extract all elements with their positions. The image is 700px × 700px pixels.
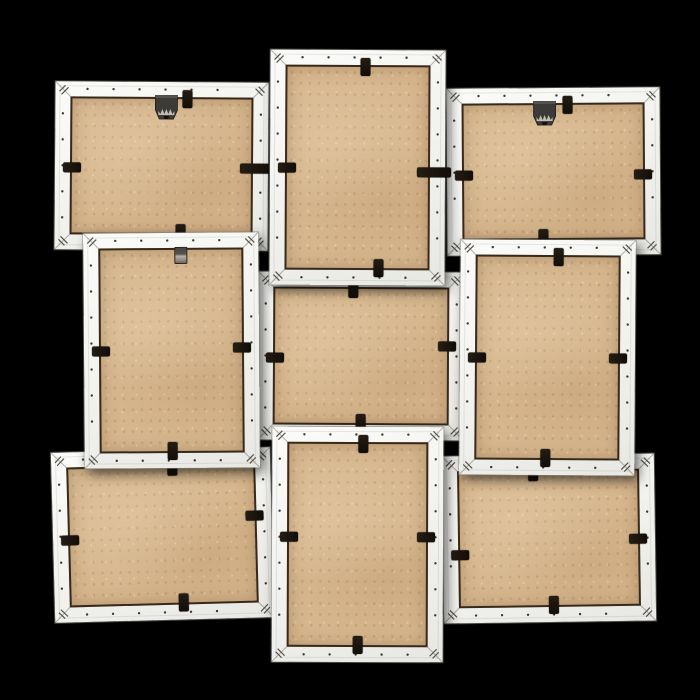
retainer-clip-bottom	[373, 259, 383, 277]
retainer-clip-right	[438, 341, 456, 351]
retainer-clip-top	[360, 58, 370, 76]
retainer-clip-right	[417, 167, 451, 177]
retainer-clip-bottom	[167, 442, 177, 460]
backing-board	[284, 65, 430, 271]
frame-back-top-center	[269, 50, 445, 286]
frame-back-bottom-right	[442, 454, 656, 624]
retainer-clip-right	[245, 510, 263, 520]
retainer-clip-top	[563, 96, 573, 114]
retainer-clip-bottom	[179, 593, 189, 611]
retainer-clip-right	[609, 353, 627, 363]
retainer-clip-right	[629, 534, 647, 544]
retainer-clip-top	[554, 248, 564, 266]
retainer-clip-right	[417, 533, 435, 543]
retainer-clip-left	[455, 170, 473, 180]
backing-board	[474, 254, 620, 460]
retainer-clip-left	[266, 352, 284, 362]
retainer-clip-left	[92, 346, 110, 356]
retainer-clip-top	[358, 435, 368, 453]
frame-back-bottom-center	[272, 427, 444, 663]
retainer-clip-bottom	[540, 449, 550, 467]
retainer-clip-left	[468, 352, 486, 362]
retainer-clip-bottom	[549, 596, 559, 614]
retainer-clip-top	[182, 90, 192, 108]
backing-board	[287, 442, 429, 647]
retainer-clip-bottom	[352, 636, 362, 654]
sawtooth-hanger	[533, 101, 557, 127]
retainer-clip-right	[634, 169, 652, 179]
backing-board	[66, 463, 259, 608]
sawtooth-hanger	[154, 95, 178, 121]
retainer-clip-left	[280, 532, 298, 542]
backing-board	[98, 247, 244, 453]
frame-back-bottom-left	[51, 447, 274, 623]
frame-back-middle-left	[83, 232, 260, 468]
retainer-clip-left	[451, 550, 469, 560]
backing-board	[273, 287, 450, 426]
product-photo-collage-frame-back	[0, 0, 700, 700]
frame-back-center	[258, 271, 465, 440]
frame-back-top-right	[446, 87, 660, 255]
metal-hanger-tab	[174, 247, 187, 264]
retainer-clip-left	[63, 162, 81, 172]
backing-board	[457, 469, 641, 609]
retainer-clip-left	[278, 162, 296, 172]
retainer-clip-right	[240, 163, 274, 173]
frame-back-middle-right	[459, 239, 636, 475]
retainer-clip-right	[233, 343, 251, 353]
retainer-clip-left	[61, 536, 79, 546]
frame-back-top-left	[54, 81, 268, 250]
